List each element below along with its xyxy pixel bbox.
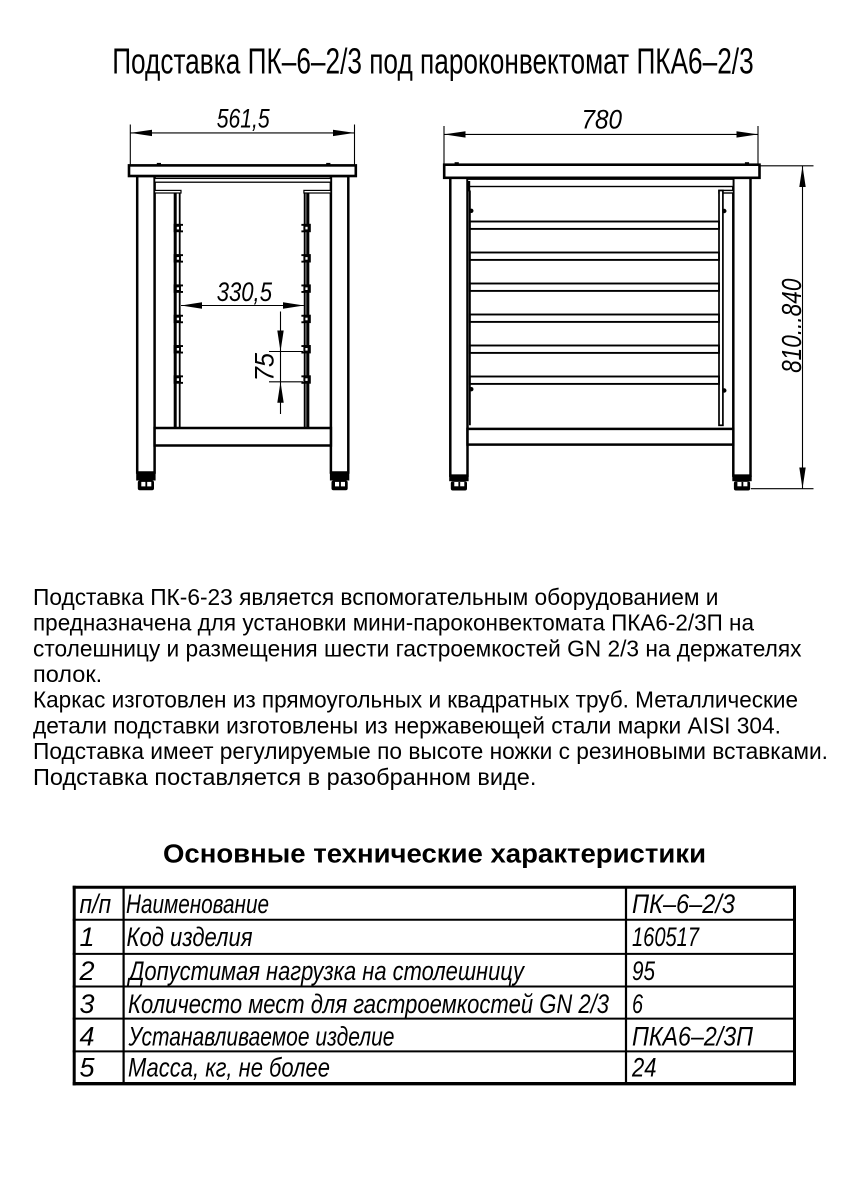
svg-text:предназначена для установки ми: предназначена для установки мини-парокон…	[33, 610, 755, 636]
svg-text:Подставка ПК-6-23 является всп: Подставка ПК-6-23 является вспомогательн…	[33, 584, 719, 610]
svg-text:2: 2	[79, 956, 95, 986]
svg-text:Количесто мест для гастроемкос: Количесто мест для гастроемкостей GN 2/3	[128, 989, 609, 1019]
svg-text:810...840: 810...840	[776, 278, 807, 373]
svg-text:Масса, кг, не более: Масса, кг, не более	[128, 1053, 330, 1083]
svg-text:24: 24	[631, 1053, 656, 1083]
svg-text:Подставка имеет регулируемые п: Подставка имеет регулируемые по высоте н…	[33, 738, 828, 764]
svg-text:Подставка поставляется в разоб: Подставка поставляется в разобранном вид…	[33, 764, 536, 790]
svg-text:780: 780	[582, 105, 623, 135]
svg-text:Каркас изготовлен из прямоугол: Каркас изготовлен из прямоугольных и ква…	[33, 687, 798, 713]
svg-text:Основные технические характери: Основные технические характеристики	[163, 841, 706, 869]
svg-text:Устанавливаемое изделие: Устанавливаемое изделие	[128, 1022, 395, 1052]
svg-text:3: 3	[80, 989, 95, 1019]
svg-text:ПК–6–2/3: ПК–6–2/3	[632, 889, 735, 919]
svg-text:Код изделия: Код изделия	[127, 922, 253, 952]
svg-text:Допустимая нагрузка на столешн: Допустимая нагрузка на столешницу	[127, 956, 526, 986]
svg-text:561,5: 561,5	[217, 104, 271, 134]
svg-text:95: 95	[632, 956, 656, 986]
svg-text:п/п: п/п	[80, 889, 112, 919]
svg-text:5: 5	[80, 1053, 96, 1083]
svg-text:Подставка ПК–6–2/3 под парокон: Подставка ПК–6–2/3 под пароконвектомат П…	[112, 40, 754, 81]
svg-text:детали подставки изготовлены и: детали подставки изготовлены из нержавею…	[33, 712, 781, 738]
svg-text:Наименование: Наименование	[126, 889, 269, 919]
svg-text:1: 1	[80, 922, 95, 952]
svg-text:полок.: полок.	[33, 661, 102, 687]
svg-text:6: 6	[632, 989, 644, 1019]
svg-text:160517: 160517	[632, 922, 700, 952]
svg-text:330,5: 330,5	[217, 277, 273, 307]
svg-text:столешницу и размещения шести: столешницу и размещения шести гастроемко…	[33, 635, 802, 661]
svg-text:75: 75	[250, 352, 280, 381]
svg-text:ПКА6–2/3П: ПКА6–2/3П	[632, 1022, 753, 1052]
svg-text:4: 4	[80, 1022, 95, 1052]
